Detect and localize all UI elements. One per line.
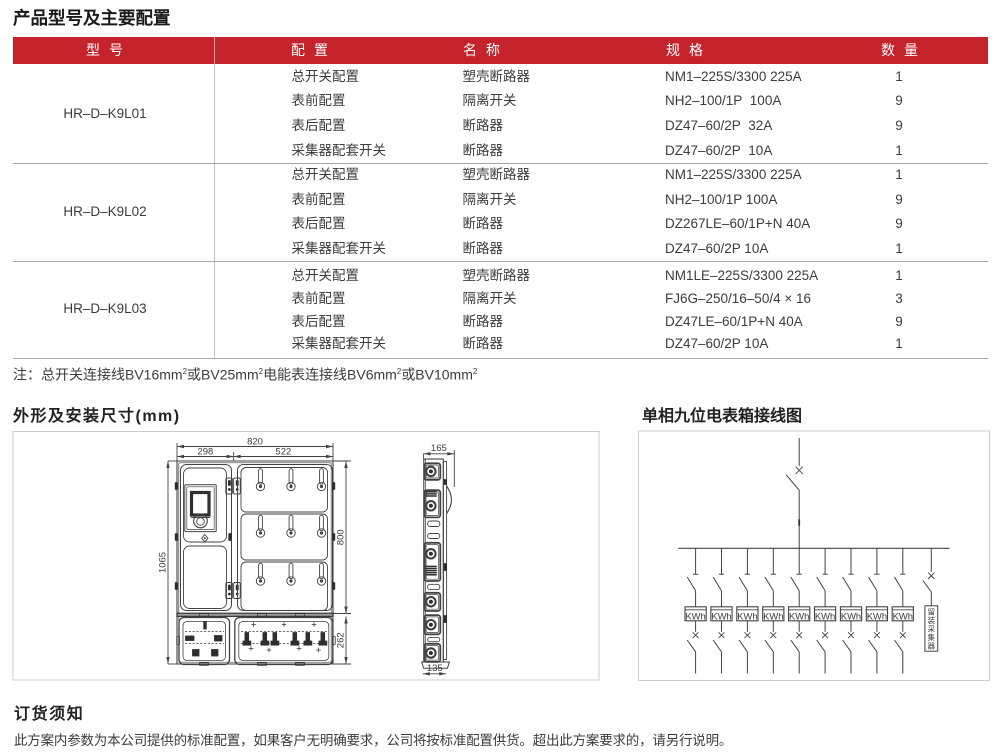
svg-text:KWh: KWh <box>685 611 705 622</box>
svg-text:KWh: KWh <box>893 611 913 622</box>
svg-text:KWh: KWh <box>815 611 835 622</box>
svg-text:KWh: KWh <box>841 611 861 622</box>
svg-text:留: 留 <box>928 606 936 616</box>
svg-text:KWh: KWh <box>867 611 887 622</box>
svg-text:集: 集 <box>928 632 936 642</box>
svg-text:装: 装 <box>928 615 936 625</box>
svg-text:KWh: KWh <box>737 611 757 622</box>
svg-text:KWh: KWh <box>789 611 809 622</box>
svg-text:器: 器 <box>928 642 936 651</box>
svg-text:KWh: KWh <box>763 611 783 622</box>
svg-text:KWh: KWh <box>711 611 731 622</box>
svg-text:采: 采 <box>928 624 936 634</box>
